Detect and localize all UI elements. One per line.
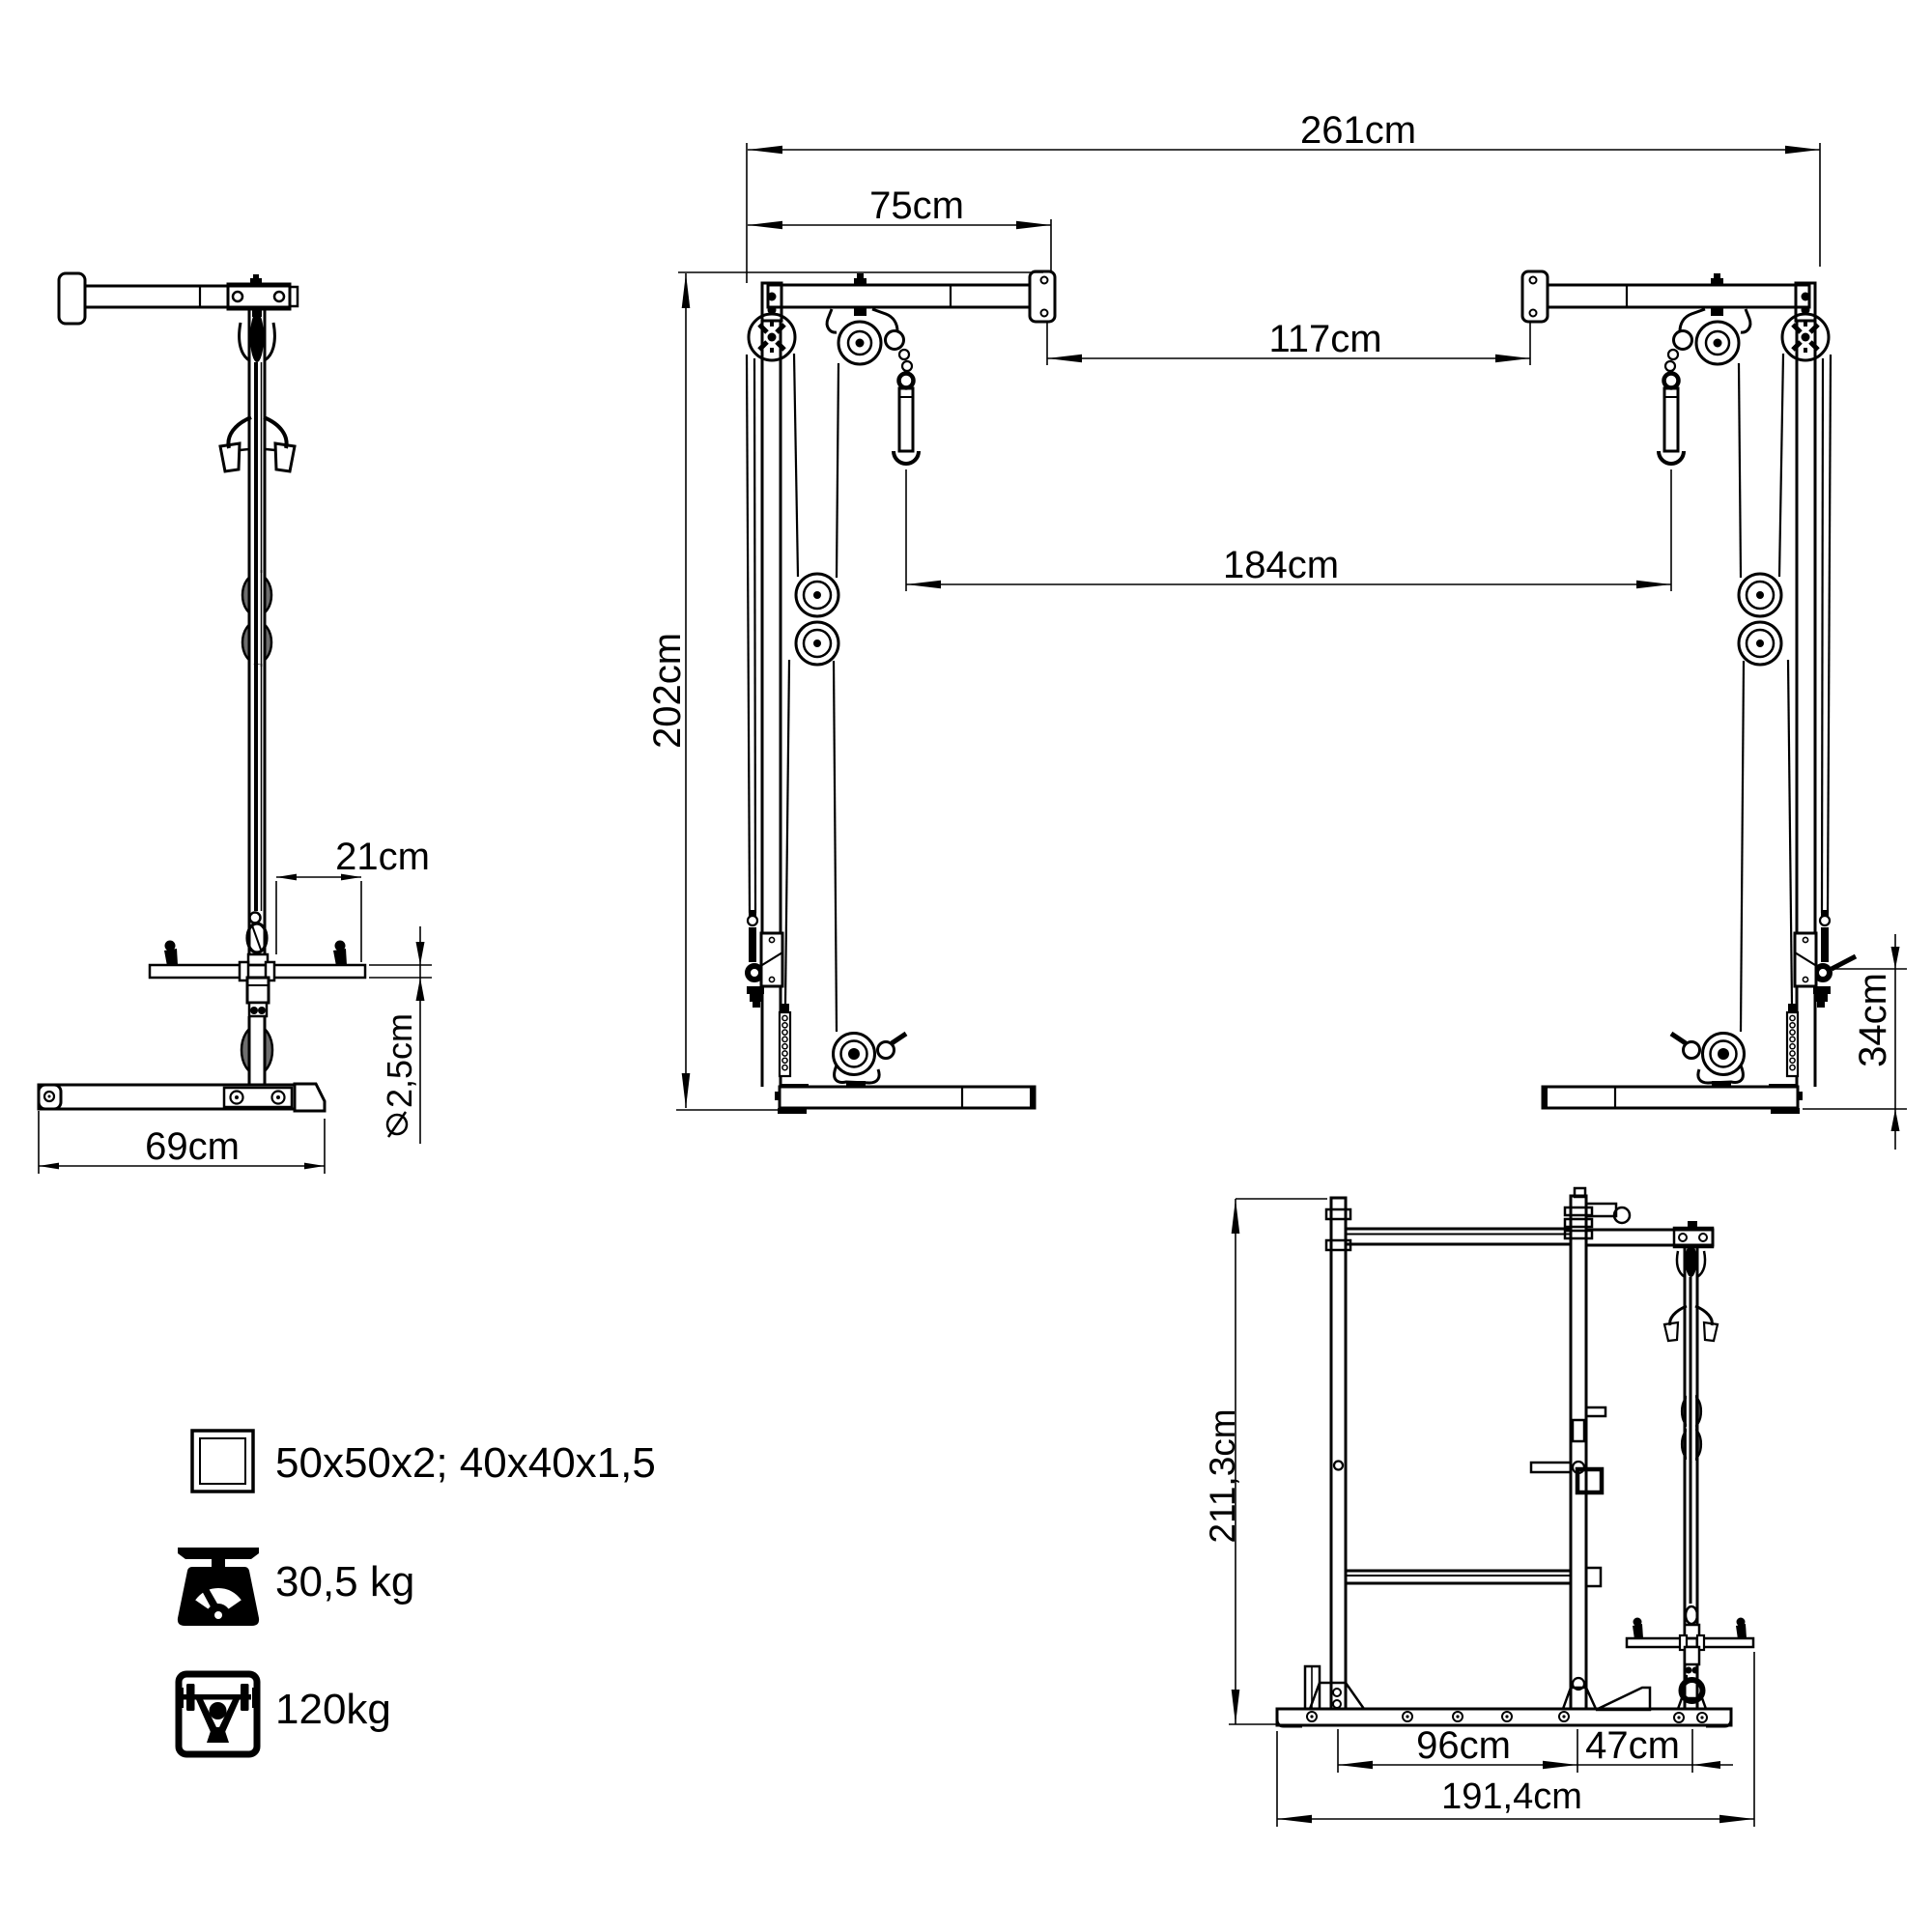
svg-text:30,5 kg: 30,5 kg — [275, 1558, 414, 1605]
svg-text:261cm: 261cm — [1300, 109, 1416, 152]
svg-text:34cm: 34cm — [1852, 973, 1894, 1067]
svg-text:69cm: 69cm — [145, 1125, 240, 1168]
svg-text:2,5cm: 2,5cm — [380, 1013, 419, 1108]
svg-text:202cm: 202cm — [646, 633, 689, 749]
svg-text:75cm: 75cm — [869, 185, 964, 227]
svg-text:50x50x2; 40x40x1,5: 50x50x2; 40x40x1,5 — [275, 1439, 656, 1487]
svg-text:120kg: 120kg — [275, 1686, 391, 1733]
svg-text:184cm: 184cm — [1223, 544, 1339, 586]
svg-text:96cm: 96cm — [1416, 1724, 1511, 1767]
svg-text:211,3cm: 211,3cm — [1203, 1408, 1242, 1543]
svg-text:21cm: 21cm — [335, 836, 430, 878]
svg-text:117cm: 117cm — [1268, 318, 1381, 360]
svg-text:191,4cm: 191,4cm — [1441, 1776, 1582, 1817]
svg-text:47cm: 47cm — [1585, 1724, 1680, 1767]
